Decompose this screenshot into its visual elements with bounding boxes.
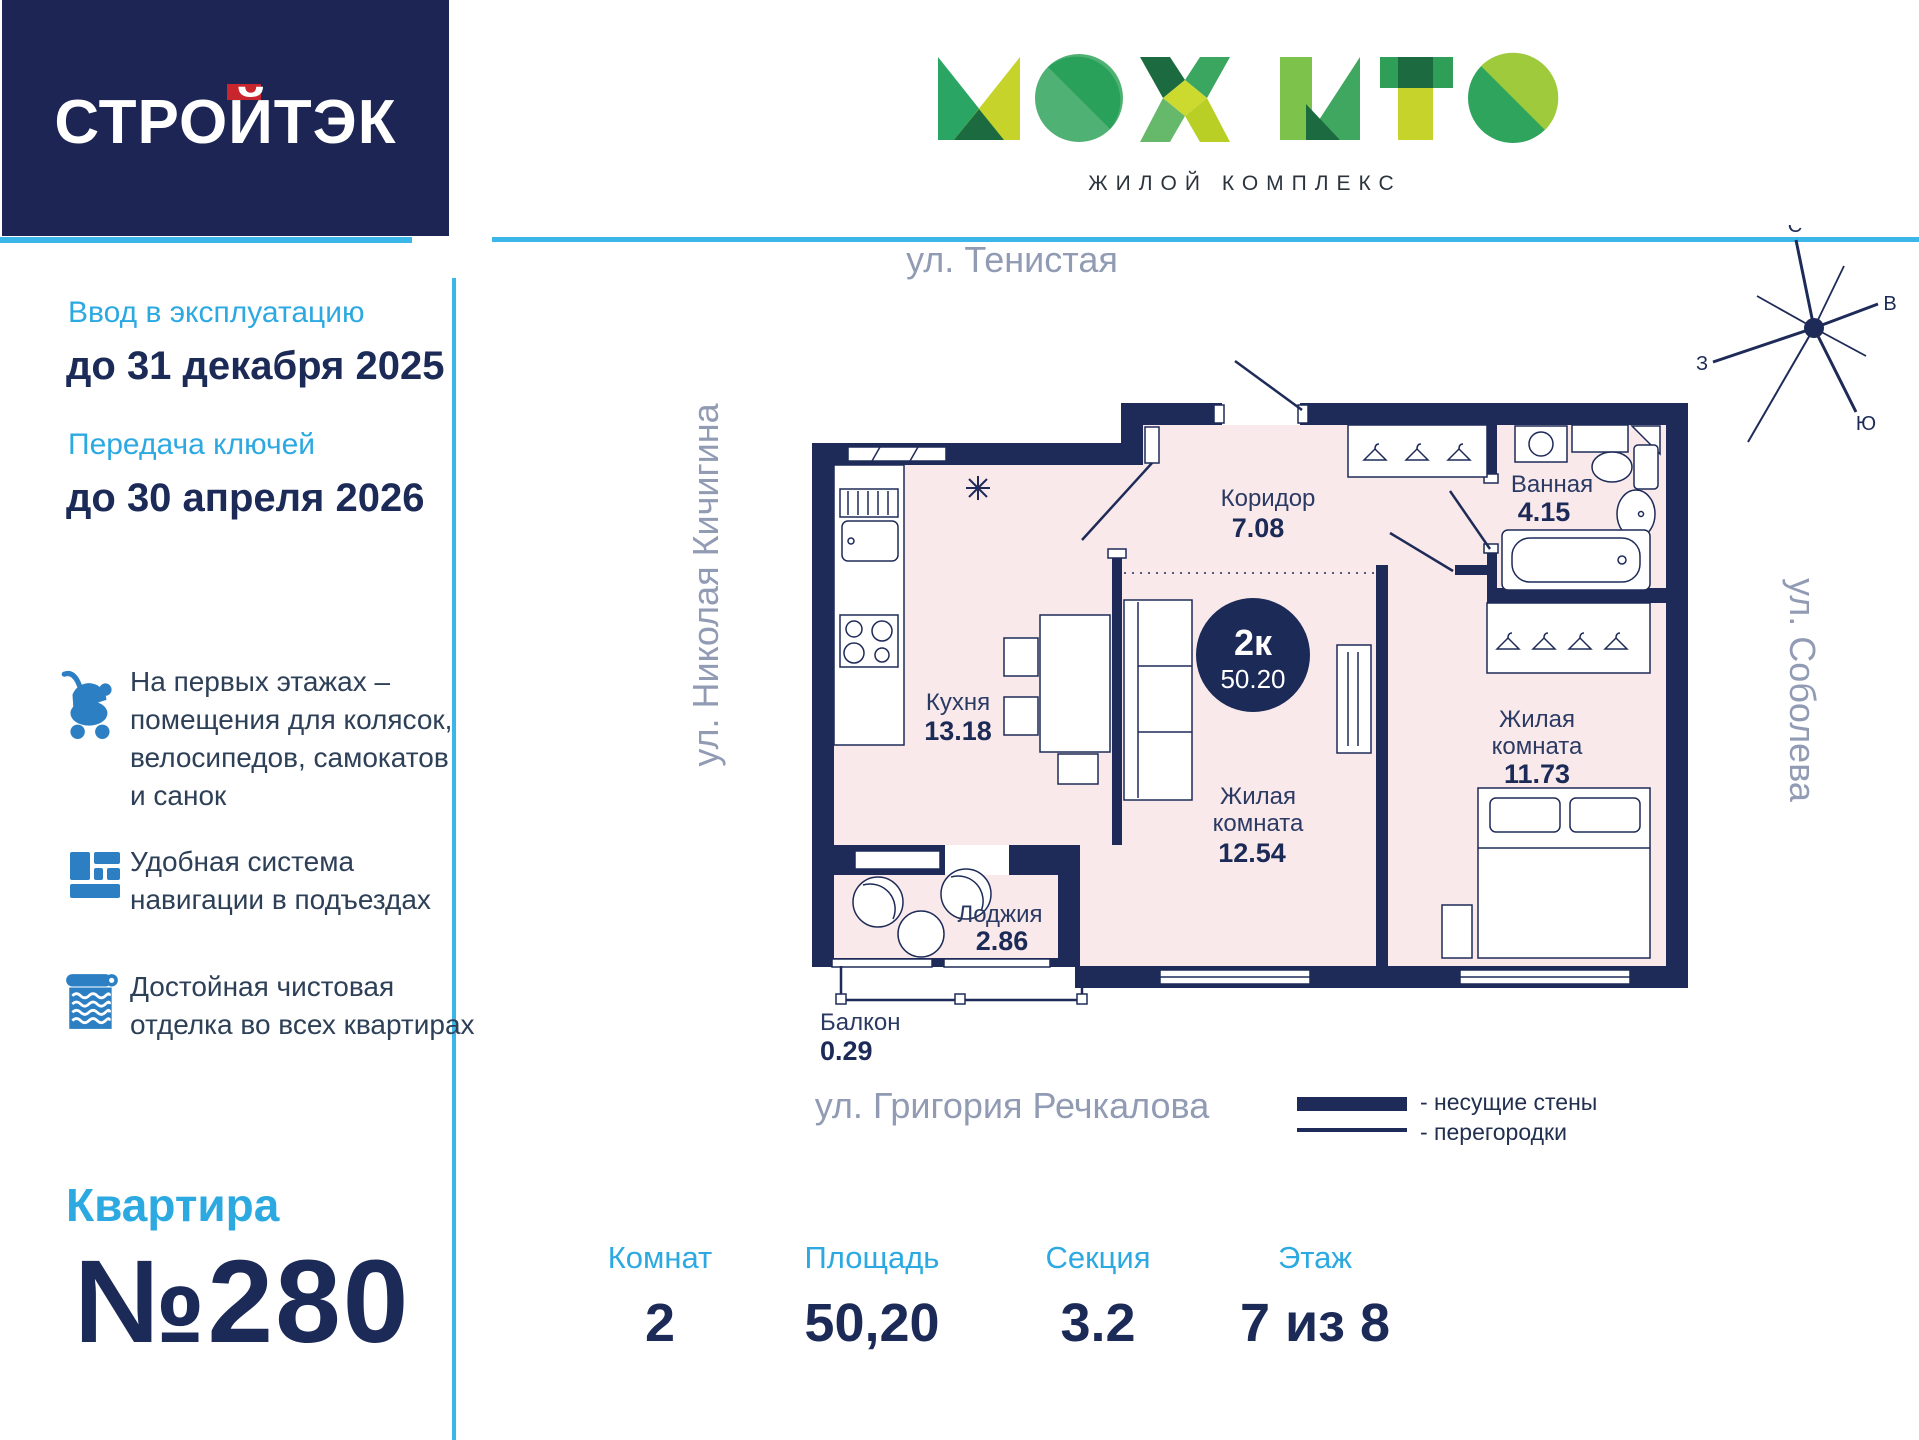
logo-letter-o2	[1468, 53, 1558, 143]
keys-label: Передача ключей	[68, 428, 315, 462]
apartment-label: Квартира	[66, 1178, 279, 1232]
pillow	[1490, 798, 1560, 832]
street-bottom: ул. Григория Речкалова	[815, 1085, 1211, 1126]
kitchen-sink-icon	[842, 521, 898, 561]
compass-rose: С В З Ю	[1696, 225, 1897, 442]
room-living1-name1: Жилая	[1220, 783, 1296, 810]
apartment-badge: 2к 50.20	[1196, 598, 1310, 712]
commissioning-date: до 31 декабря 2025	[66, 344, 445, 389]
balcony-railing	[836, 966, 1087, 1004]
wall-legend: - несущие стены - перегородки	[1297, 1089, 1597, 1145]
badge-area: 50.20	[1220, 664, 1285, 694]
wallpaper-roll-icon	[64, 972, 120, 1032]
complex-subtitle: ЖИЛОЙ КОМПЛЕКС	[1040, 172, 1450, 196]
feature-text-finish: Достойная чистовая отделка во всех кварт…	[130, 968, 490, 1044]
room-bathroom-name: Ванная	[1511, 471, 1593, 498]
floor-plan: ул. Тенистая ул. Николая Кичигина ул. Со…	[640, 225, 1919, 1160]
legend-thin-line	[1297, 1128, 1407, 1132]
toilet-icon	[1592, 452, 1632, 482]
room-corridor-name: Коридор	[1221, 485, 1316, 512]
room-living2-name2: комната	[1492, 733, 1583, 760]
room-living1-area: 12.54	[1218, 838, 1286, 868]
logo-letter-o1	[1035, 54, 1123, 142]
navigation-tiles-icon	[68, 848, 122, 902]
street-right: ул. Соболева	[1782, 578, 1823, 803]
chair	[1004, 638, 1038, 676]
sofa	[1124, 600, 1192, 800]
loggia-table	[898, 911, 944, 957]
logo-letter-t	[1380, 57, 1453, 140]
divider-under-logo	[0, 237, 412, 243]
mokhito-logo	[930, 45, 1565, 155]
stat-floor-value: 7 из 8	[1165, 1292, 1465, 1354]
legend-thick-line	[1297, 1097, 1407, 1111]
nightstand	[1442, 905, 1472, 958]
console-table	[1337, 645, 1371, 753]
keys-date: до 30 апреля 2026	[66, 476, 424, 521]
room-loggia-name: Лоджия	[957, 901, 1042, 928]
flyer-page: { "brand": { "developer": "СТРОЙТЭК", "c…	[0, 0, 1919, 1440]
dining-table	[1040, 615, 1110, 752]
room-living1-name2: комната	[1213, 810, 1304, 837]
pillow	[1570, 798, 1640, 832]
feature-text-navigation: Удобная система навигации в подъездах	[130, 843, 470, 919]
bedroom-wardrobe	[1487, 603, 1650, 673]
compass-south: Ю	[1856, 413, 1876, 435]
commissioning-label: Ввод в эксплуатацию	[68, 296, 364, 330]
badge-rooms: 2к	[1234, 622, 1273, 663]
bath-shelf	[1572, 425, 1628, 452]
stroller-icon	[60, 668, 122, 740]
toilet-tank	[1634, 445, 1658, 489]
developer-name: СТРОЙТЭК	[2, 92, 449, 154]
entrance-door-leaf	[1235, 361, 1302, 410]
stats-row: Комнат 2 Площадь 50,20 Секция 3.2 Этаж 7…	[0, 1240, 1919, 1400]
room-loggia-area: 2.86	[976, 926, 1029, 956]
developer-logo-box: СТРОЙТЭК	[2, 0, 449, 236]
logo-letter-x	[1140, 57, 1230, 142]
legend-bearing-label: - несущие стены	[1420, 1089, 1597, 1115]
room-living2-area: 11.73	[1504, 759, 1570, 789]
room-balcony-name: Балкон	[820, 1009, 900, 1036]
room-bathroom-area: 4.15	[1518, 497, 1571, 527]
corridor-wardrobe	[1348, 425, 1487, 477]
compass-east: В	[1883, 293, 1896, 315]
room-kitchen-area: 13.18	[924, 716, 992, 746]
stat-floor: Этаж 7 из 8	[1165, 1240, 1465, 1354]
room-balcony-area: 0.29	[820, 1036, 873, 1066]
stat-floor-label: Этаж	[1165, 1240, 1465, 1276]
chair	[1004, 697, 1038, 735]
room-living2-name1: Жилая	[1499, 706, 1575, 733]
compass-west: З	[1696, 353, 1708, 375]
chair	[1058, 754, 1098, 784]
compass-north: С	[1788, 225, 1802, 237]
room-kitchen-name: Кухня	[926, 689, 990, 716]
feature-text-stroller: На первых этажах – помещения для колясок…	[130, 663, 470, 815]
logo-letter-m	[938, 57, 1020, 140]
room-corridor-area: 7.08	[1232, 513, 1285, 543]
legend-partition-label: - перегородки	[1420, 1119, 1567, 1145]
vent-star-icon	[966, 476, 990, 500]
logo-letter-i	[1280, 57, 1360, 140]
street-top: ул. Тенистая	[906, 239, 1118, 280]
street-left: ул. Николая Кичигина	[685, 402, 726, 766]
